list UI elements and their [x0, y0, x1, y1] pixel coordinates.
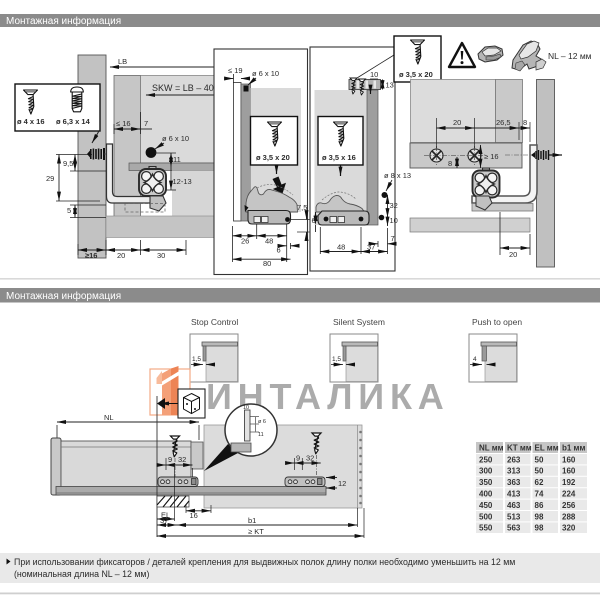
svg-text:224: 224: [562, 490, 576, 499]
svg-text:KT мм: KT мм: [507, 444, 532, 453]
svg-text:SKW = LB – 40: SKW = LB – 40: [152, 83, 214, 93]
svg-text:288: 288: [562, 512, 576, 521]
svg-text:313: 313: [507, 467, 521, 476]
svg-text:Stop Control: Stop Control: [191, 317, 238, 327]
svg-text:≤ 16: ≤ 16: [116, 119, 131, 128]
svg-text:563: 563: [507, 524, 521, 533]
svg-text:6: 6: [277, 246, 281, 255]
svg-text:413: 413: [507, 490, 521, 499]
svg-text:Silent System: Silent System: [333, 317, 385, 327]
svg-text:ø 8 x 13: ø 8 x 13: [384, 171, 411, 180]
svg-text:10: 10: [370, 70, 378, 79]
svg-text:1,5: 1,5: [332, 356, 341, 363]
svg-text:513: 513: [507, 512, 521, 521]
svg-text:ø 6,3 x 14: ø 6,3 x 14: [56, 117, 91, 126]
svg-text:ø 6 x 10: ø 6 x 10: [162, 134, 189, 143]
svg-text:32: 32: [306, 454, 314, 463]
svg-text:20: 20: [453, 118, 461, 127]
svg-text:48: 48: [265, 237, 273, 246]
svg-text:13: 13: [386, 81, 394, 90]
svg-text:32: 32: [390, 201, 398, 210]
svg-text:b1 мм: b1 мм: [562, 444, 585, 453]
svg-text:37: 37: [367, 243, 375, 252]
svg-text:12-13: 12-13: [173, 177, 192, 186]
svg-text:30: 30: [157, 251, 165, 260]
svg-text:1,5: 1,5: [192, 356, 201, 363]
svg-text:350: 350: [479, 478, 493, 487]
svg-text:5: 5: [67, 206, 71, 215]
svg-text:62: 62: [535, 478, 544, 487]
svg-text:160: 160: [562, 455, 576, 464]
svg-text:10: 10: [390, 216, 398, 225]
svg-text:9: 9: [296, 454, 300, 463]
svg-text:37: 37: [160, 516, 168, 525]
svg-text:20: 20: [509, 250, 517, 259]
svg-text:500: 500: [479, 512, 493, 521]
svg-text:98: 98: [535, 512, 544, 521]
svg-text:(номинальная длина NL – 12 мм): (номинальная длина NL – 12 мм): [14, 569, 149, 579]
svg-text:12: 12: [338, 479, 346, 488]
svg-text:ø 6 x 10: ø 6 x 10: [252, 69, 279, 78]
svg-text:8: 8: [448, 159, 452, 168]
svg-text:6: 6: [312, 216, 316, 225]
svg-text:320: 320: [562, 524, 576, 533]
svg-text:400: 400: [479, 490, 493, 499]
svg-text:LB: LB: [118, 57, 127, 66]
svg-text:26,5: 26,5: [496, 118, 511, 127]
svg-text:250: 250: [479, 455, 493, 464]
svg-text:450: 450: [479, 501, 493, 510]
svg-text:74: 74: [535, 490, 544, 499]
svg-text:ø 6: ø 6: [258, 419, 266, 425]
svg-text:≥16: ≥16: [85, 251, 97, 260]
svg-text:≤ 19: ≤ 19: [228, 66, 243, 75]
svg-text:50: 50: [535, 455, 544, 464]
svg-text:32: 32: [178, 455, 186, 464]
svg-text:8: 8: [523, 118, 527, 127]
svg-text:9: 9: [168, 455, 172, 464]
svg-text:NL мм: NL мм: [479, 444, 504, 453]
svg-text:≥ KT: ≥ KT: [248, 527, 264, 536]
svg-text:≥ 16: ≥ 16: [484, 152, 499, 161]
svg-text:Push to open: Push to open: [472, 317, 522, 327]
svg-text:463: 463: [507, 501, 521, 510]
svg-text:4: 4: [473, 356, 477, 363]
svg-text:363: 363: [507, 478, 521, 487]
svg-text:10: 10: [243, 405, 249, 411]
svg-text:7,5: 7,5: [297, 203, 307, 212]
svg-text:Монтажная информация: Монтажная информация: [6, 15, 121, 27]
svg-text:50: 50: [535, 467, 544, 476]
svg-text:192: 192: [562, 478, 576, 487]
svg-text:86: 86: [535, 501, 544, 510]
svg-text:При использовании фиксаторов /: При использовании фиксаторов / деталей к…: [14, 557, 515, 567]
svg-text:300: 300: [479, 467, 493, 476]
svg-text:20: 20: [117, 251, 125, 260]
svg-text:16: 16: [190, 511, 198, 520]
svg-text:ø 3,5 x 20: ø 3,5 x 20: [256, 153, 290, 162]
svg-text:b1: b1: [248, 516, 256, 525]
svg-text:80: 80: [263, 259, 271, 268]
svg-text:48: 48: [337, 243, 345, 252]
svg-text:NL: NL: [104, 413, 114, 422]
svg-text:263: 263: [507, 455, 521, 464]
svg-text:98: 98: [535, 524, 544, 533]
svg-text:EL мм: EL мм: [535, 444, 559, 453]
svg-text:ø 3,5 x 20: ø 3,5 x 20: [399, 70, 433, 79]
svg-text:ø 4 x 16: ø 4 x 16: [17, 117, 45, 126]
svg-text:7: 7: [391, 234, 395, 243]
svg-text:160: 160: [562, 467, 576, 476]
svg-text:29: 29: [46, 174, 54, 183]
svg-text:26: 26: [241, 237, 249, 246]
svg-text:9,5: 9,5: [63, 159, 73, 168]
svg-text:11: 11: [258, 432, 264, 438]
svg-text:11: 11: [173, 155, 181, 164]
svg-text:7: 7: [144, 119, 148, 128]
svg-text:NL – 12 мм: NL – 12 мм: [548, 51, 592, 61]
svg-text:Монтажная информация: Монтажная информация: [6, 290, 121, 302]
svg-text:256: 256: [562, 501, 576, 510]
svg-text:550: 550: [479, 524, 493, 533]
svg-text:ø 3,5 x 16: ø 3,5 x 16: [322, 153, 356, 162]
